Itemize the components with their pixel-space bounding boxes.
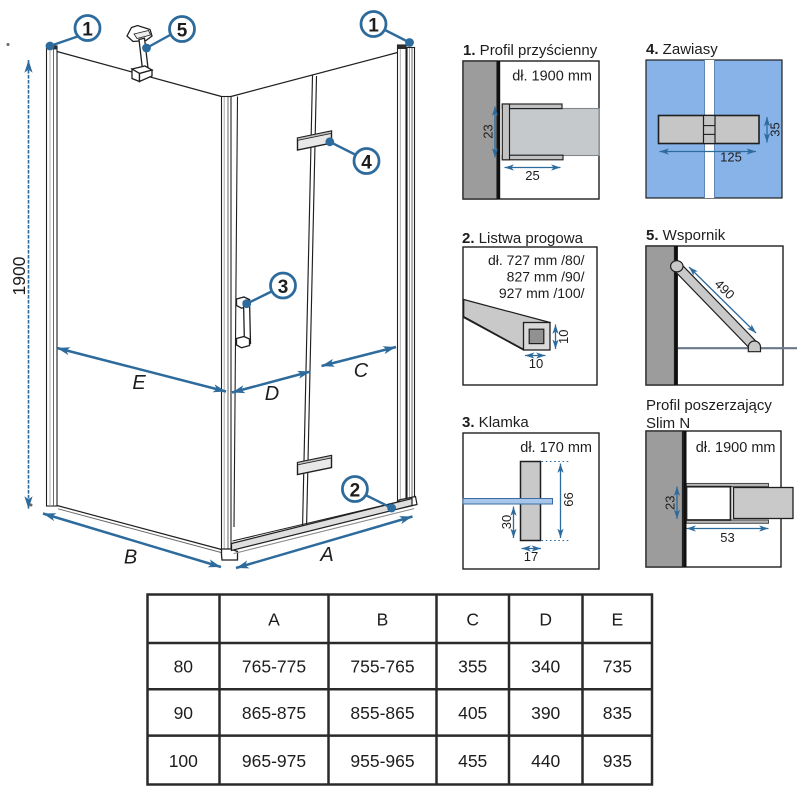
svg-text:A: A	[268, 610, 280, 630]
svg-text:3: 3	[278, 277, 289, 298]
svg-text:4. Zawiasy: 4. Zawiasy	[646, 41, 718, 58]
svg-text:965-975: 965-975	[242, 751, 306, 771]
svg-text:5: 5	[177, 21, 188, 42]
svg-text:10: 10	[529, 356, 543, 371]
svg-text:865-875: 865-875	[242, 703, 306, 723]
svg-text:455: 455	[458, 751, 487, 771]
svg-text:dł. 170 mm: dł. 170 mm	[520, 440, 592, 456]
svg-text:A: A	[319, 544, 333, 566]
svg-text:927 mm /100/: 927 mm /100/	[499, 285, 585, 301]
svg-text:125: 125	[720, 150, 742, 165]
svg-text:C: C	[354, 360, 369, 382]
svg-text:E: E	[612, 610, 624, 630]
svg-text:10: 10	[556, 330, 571, 344]
svg-text:23: 23	[481, 124, 496, 138]
svg-text:855-865: 855-865	[350, 703, 414, 723]
svg-text:440: 440	[531, 751, 560, 771]
svg-text:2. Listwa progowa: 2. Listwa progowa	[462, 230, 584, 247]
svg-text:35: 35	[768, 122, 783, 136]
svg-text:dł. 727 mm /80/: dł. 727 mm /80/	[488, 252, 585, 268]
svg-text:C: C	[466, 610, 479, 630]
svg-text:755-765: 755-765	[350, 657, 414, 677]
svg-text:1: 1	[368, 16, 379, 37]
svg-text:390: 390	[531, 703, 560, 723]
svg-text:100: 100	[169, 751, 198, 771]
svg-text:5. Wspornik: 5. Wspornik	[646, 227, 726, 244]
svg-text:765-775: 765-775	[242, 657, 306, 677]
svg-text:340: 340	[531, 657, 560, 677]
svg-text:B: B	[377, 610, 389, 630]
svg-text:90: 90	[174, 703, 194, 723]
svg-text:B: B	[124, 547, 137, 569]
svg-text:835: 835	[603, 703, 632, 723]
svg-text:D: D	[265, 383, 279, 405]
svg-text:1. Profil przyścienny: 1. Profil przyścienny	[463, 42, 598, 59]
svg-text:D: D	[539, 610, 552, 630]
svg-text:dł. 1900 mm: dł. 1900 mm	[512, 69, 592, 85]
svg-text:17: 17	[524, 549, 538, 564]
svg-text:4: 4	[361, 153, 372, 174]
svg-text:2: 2	[350, 481, 361, 502]
svg-text:405: 405	[458, 703, 487, 723]
svg-text:53: 53	[720, 530, 734, 545]
svg-text:935: 935	[603, 751, 632, 771]
svg-text:23: 23	[663, 496, 678, 510]
svg-text:Slim N: Slim N	[646, 415, 690, 432]
svg-text:735: 735	[603, 657, 632, 677]
svg-text:827 mm /90/: 827 mm /90/	[507, 269, 585, 285]
svg-text:Profil poszerzający: Profil poszerzający	[646, 397, 772, 414]
svg-text:66: 66	[561, 492, 576, 506]
svg-text:355: 355	[458, 657, 487, 677]
svg-text:80: 80	[174, 657, 194, 677]
svg-text:dł. 1900 mm: dł. 1900 mm	[696, 440, 776, 456]
svg-text:3. Klamka: 3. Klamka	[462, 414, 529, 431]
svg-text:1: 1	[82, 20, 93, 41]
svg-text:25: 25	[525, 168, 539, 183]
svg-text:E: E	[132, 372, 146, 394]
svg-text:30: 30	[499, 515, 514, 529]
svg-text:1900: 1900	[9, 256, 29, 295]
svg-text:955-965: 955-965	[350, 751, 414, 771]
